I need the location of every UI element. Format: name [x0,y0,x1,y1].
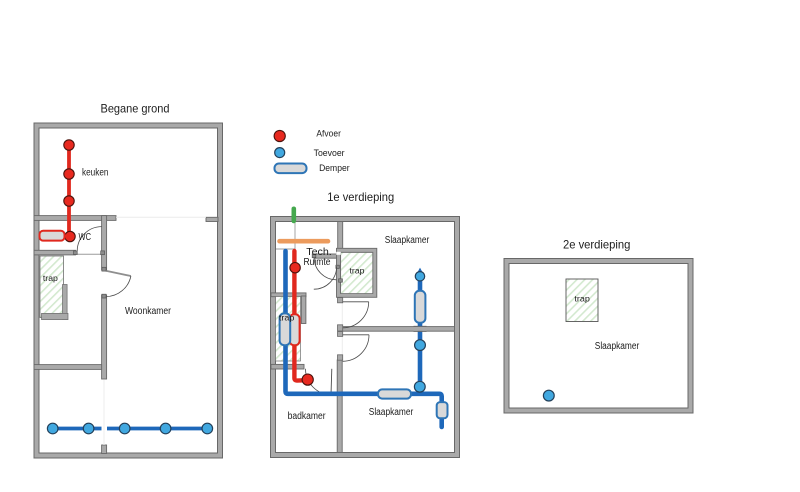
svg-text:Begane grond: Begane grond [101,102,170,116]
svg-text:Demper: Demper [319,163,350,174]
svg-text:Ruimte: Ruimte [304,257,331,268]
svg-text:Slaapkamer: Slaapkamer [595,341,640,352]
svg-text:Slaapkamer: Slaapkamer [369,407,414,418]
svg-text:Toevoer: Toevoer [314,148,346,159]
svg-text:trap: trap [279,312,295,322]
svg-text:Afvoer: Afvoer [316,129,341,140]
svg-text:keuken: keuken [82,168,109,179]
svg-text:2e verdieping: 2e verdieping [563,238,631,252]
svg-text:Slaapkamer: Slaapkamer [385,235,430,246]
svg-text:trap: trap [43,273,58,283]
svg-text:trap: trap [574,294,590,304]
svg-text:WC: WC [79,232,92,243]
svg-text:trap: trap [350,266,365,276]
svg-text:Woonkamer: Woonkamer [125,306,172,317]
svg-text:1e verdieping: 1e verdieping [327,190,394,204]
svg-text:badkamer: badkamer [288,411,327,422]
